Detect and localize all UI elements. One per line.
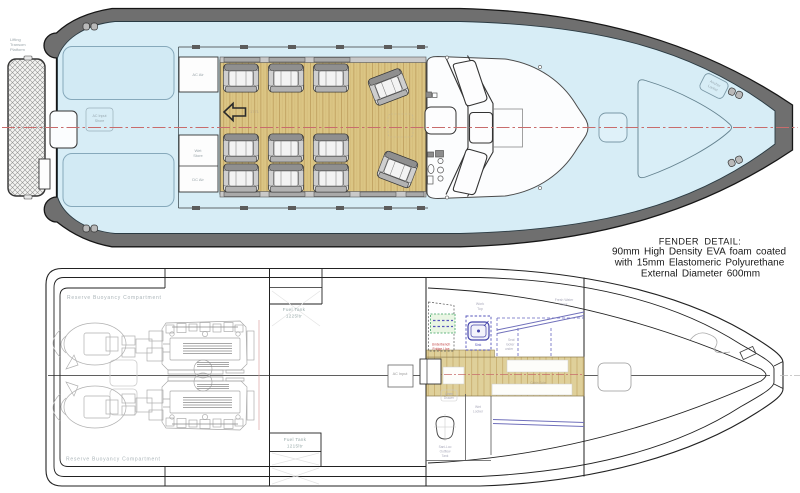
- svg-text:Platform: Platform: [10, 47, 26, 52]
- svg-text:AC Input: AC Input: [93, 114, 107, 118]
- svg-text:under: under: [505, 347, 514, 351]
- svg-text:Underbench: Underbench: [432, 343, 451, 347]
- svg-text:locker: locker: [506, 343, 515, 347]
- svg-text:Locker: Locker: [473, 410, 484, 414]
- svg-text:90mm High Density EVA foam coa: 90mm High Density EVA foam coated: [612, 247, 786, 258]
- svg-text:Store: Store: [193, 153, 203, 158]
- svg-text:1771: 1771: [250, 109, 260, 114]
- svg-text:Wet: Wet: [475, 405, 481, 409]
- svg-text:Outflow: Outflow: [440, 450, 452, 454]
- svg-text:Reserve Buoyancy Compartment: Reserve Buoyancy Compartment: [67, 295, 162, 301]
- svg-text:Fresh Water: Fresh Water: [555, 298, 574, 302]
- svg-text:Work: Work: [476, 302, 485, 306]
- svg-text:1215ltr: 1215ltr: [287, 444, 303, 449]
- svg-text:DC Air: DC Air: [192, 177, 204, 182]
- svg-text:Top: Top: [477, 307, 483, 311]
- svg-text:FENDER DETAIL:: FENDER DETAIL:: [659, 237, 741, 247]
- svg-text:Shore: Shore: [95, 119, 105, 123]
- svg-text:Fuel Tank: Fuel Tank: [283, 307, 306, 312]
- svg-text:1225ltr: 1225ltr: [286, 314, 302, 319]
- svg-text:Sink: Sink: [475, 343, 482, 347]
- svg-text:External Diameter 600mm: External Diameter 600mm: [641, 269, 760, 280]
- svg-text:with 15mm Elastomeric Polyuret: with 15mm Elastomeric Polyurethane: [614, 258, 785, 269]
- svg-text:Tank: Tank: [442, 454, 449, 458]
- svg-text:Seat: Seat: [508, 338, 515, 342]
- svg-text:AC Air: AC Air: [192, 72, 204, 77]
- svg-text:Reserve Buoyancy Compartment: Reserve Buoyancy Compartment: [66, 457, 161, 463]
- svg-text:Fuel Tank: Fuel Tank: [284, 437, 307, 442]
- svg-text:Cabin Sole: Cabin Sole: [530, 381, 546, 385]
- svg-text:Sani-Loo: Sani-Loo: [439, 445, 452, 449]
- svg-text:Tank: Tank: [560, 303, 567, 307]
- svg-text:Fridge / Ice: Fridge / Ice: [433, 347, 450, 351]
- svg-text:Drawer: Drawer: [444, 396, 455, 400]
- svg-text:AC Input: AC Input: [393, 372, 409, 376]
